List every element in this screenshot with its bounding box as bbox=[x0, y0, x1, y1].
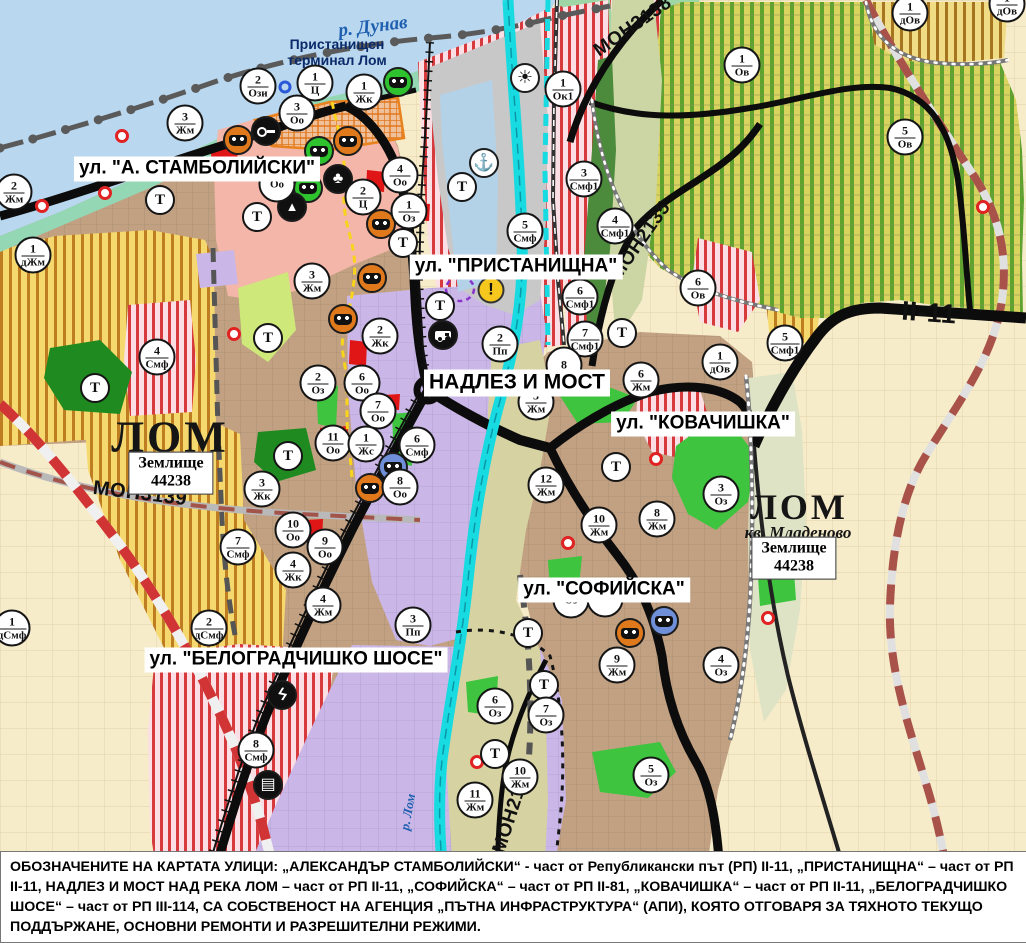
zone-code: Жм bbox=[589, 525, 610, 538]
poi-glyph bbox=[339, 136, 357, 147]
zone-code: Жм bbox=[631, 380, 652, 393]
zone-code: Оз bbox=[711, 494, 732, 507]
transport-marker: Т bbox=[80, 373, 110, 403]
zone-marker: 5 Смф bbox=[507, 213, 544, 250]
transport-label: Т bbox=[90, 380, 100, 397]
poi-icon bbox=[649, 606, 679, 636]
zone-number: 6 bbox=[414, 432, 420, 445]
legend-note: ОБОЗНАЧЕНИТЕ НА КАРТАТА УЛИЦИ: „АЛЕКСАНД… bbox=[0, 851, 1026, 943]
zone-marker: 3 Смф1 bbox=[566, 161, 603, 198]
zone-code: Оо bbox=[287, 113, 308, 126]
zone-code: Ов bbox=[688, 288, 709, 301]
zone-code: Ц bbox=[353, 197, 374, 210]
zone-number: 1 bbox=[312, 70, 318, 83]
zone-marker: 5 Оз bbox=[633, 757, 670, 794]
zone-number: 2 bbox=[497, 331, 503, 344]
transport-label: Т bbox=[283, 448, 293, 465]
zone-code: Оо bbox=[323, 443, 344, 456]
zone-marker: 2 Ози bbox=[240, 68, 277, 105]
transport-label: Т bbox=[263, 330, 273, 347]
zone-code: дСмф bbox=[195, 628, 224, 641]
zone-number: 5 bbox=[648, 762, 654, 775]
poi-glyph bbox=[229, 135, 247, 146]
street-label: ул. "БЕЛОГРАДЧИШКО ШОСЕ" bbox=[145, 648, 448, 673]
zone-code: Пп bbox=[490, 344, 511, 357]
poi-icon bbox=[357, 263, 387, 293]
poi-glyph bbox=[389, 77, 407, 88]
transport-marker: Т bbox=[447, 172, 477, 202]
zone-number: 1 bbox=[717, 349, 723, 362]
poi-icon bbox=[478, 277, 505, 304]
zone-marker: 3 Пп bbox=[395, 607, 432, 644]
poi-glyph bbox=[278, 686, 287, 705]
zone-code: Жм bbox=[4, 192, 25, 205]
zone-marker: 7 Смф bbox=[220, 529, 257, 566]
zone-code: Жм bbox=[526, 402, 547, 415]
zone-number: 1 bbox=[907, 0, 913, 13]
transport-marker: Т bbox=[145, 185, 175, 215]
zone-number: 2 bbox=[255, 73, 261, 86]
zone-code: Оо bbox=[315, 547, 336, 560]
street-label: ул. "А. СТАМБОЛИЙСКИ" bbox=[74, 157, 320, 182]
zone-number: 1 bbox=[9, 615, 15, 628]
zone-marker: 8 Оо bbox=[382, 469, 419, 506]
zone-code: Смф1 bbox=[566, 297, 595, 310]
zone-code: Жк bbox=[370, 336, 391, 349]
zone-marker: 1 Жк bbox=[346, 74, 383, 111]
transport-marker: Т bbox=[513, 618, 543, 648]
zone-number: 1 bbox=[361, 79, 367, 92]
zone-number: 6 bbox=[577, 284, 583, 297]
point-marker-icon bbox=[976, 200, 990, 214]
zone-marker: 6 Смф bbox=[399, 427, 436, 464]
zone-code: дОв bbox=[900, 13, 921, 26]
poi-glyph bbox=[334, 314, 352, 325]
street-label: НАДЛЕЗ И МОСТ bbox=[424, 370, 610, 397]
zone-number: 3 bbox=[309, 268, 315, 281]
poi-icon bbox=[333, 126, 363, 156]
zone-number: 10 bbox=[287, 517, 299, 530]
poi-icon bbox=[510, 63, 540, 93]
zone-number: 6 bbox=[492, 693, 498, 706]
zone-code: Жк bbox=[283, 570, 304, 583]
zone-code: Жм bbox=[607, 665, 628, 678]
town-label: ЛОМ bbox=[750, 486, 848, 528]
poi-glyph bbox=[361, 483, 379, 494]
zone-number: 8 bbox=[253, 737, 259, 750]
zone-marker: 3 Жм bbox=[167, 105, 204, 142]
transport-label: Т bbox=[252, 209, 262, 226]
zone-marker: 4 Оз bbox=[703, 647, 740, 684]
zone-number: 4 bbox=[612, 213, 618, 226]
poi-icon bbox=[251, 116, 281, 146]
zone-code: Оо bbox=[390, 487, 411, 500]
zone-code: Жм bbox=[647, 519, 668, 532]
zone-code: Смф bbox=[244, 750, 267, 763]
zone-marker: 2 Пп bbox=[482, 326, 519, 363]
poi-glyph bbox=[286, 198, 299, 216]
poi-icon bbox=[469, 148, 499, 178]
point-marker-icon bbox=[227, 327, 241, 341]
transport-marker: Т bbox=[253, 323, 283, 353]
zone-number: 1 bbox=[406, 198, 412, 211]
zone-marker: 1 Жс bbox=[348, 426, 385, 463]
transport-marker: Т bbox=[273, 441, 303, 471]
transport-label: Т bbox=[457, 179, 467, 196]
zone-marker: 10 Жм bbox=[502, 759, 539, 796]
zone-number: 3 bbox=[294, 100, 300, 113]
zone-code: Оз bbox=[485, 706, 506, 719]
zone-marker: 8 Смф bbox=[238, 732, 275, 769]
zone-code: Жм bbox=[536, 485, 557, 498]
zone-marker: 4 Смф1 bbox=[597, 208, 634, 245]
poi-glyph bbox=[435, 331, 451, 340]
zone-marker: 4 Оо bbox=[382, 157, 419, 194]
zone-marker: 11 Оо bbox=[315, 425, 352, 462]
zone-marker: 3 Жм bbox=[294, 263, 331, 300]
street-label: ул. "СОФИЙСКА" bbox=[518, 578, 690, 603]
zone-code: Оз bbox=[711, 665, 732, 678]
transport-label: Т bbox=[523, 625, 533, 642]
zone-code: Смф1 bbox=[601, 226, 630, 239]
zone-marker: 6 Ов bbox=[680, 270, 717, 307]
zone-number: 4 bbox=[290, 557, 296, 570]
zone-number: 3 bbox=[410, 612, 416, 625]
zone-marker: 5 Смф1 bbox=[767, 325, 804, 362]
poi-glyph bbox=[333, 170, 344, 188]
zone-number: 5 bbox=[522, 218, 528, 231]
zone-code: дЖм bbox=[21, 255, 45, 268]
zone-marker: 9 Оо bbox=[307, 529, 344, 566]
zone-number: 10 bbox=[514, 764, 526, 777]
zone-number: 11 bbox=[327, 430, 338, 443]
zone-number: 4 bbox=[320, 592, 326, 605]
zone-marker: 1 Оз bbox=[391, 193, 428, 230]
land-plot-box: Землище 44238 bbox=[128, 452, 213, 495]
zone-number: 5 bbox=[782, 330, 788, 343]
zone-marker: 9 Жм bbox=[599, 647, 636, 684]
point-marker-icon bbox=[115, 129, 129, 143]
zone-marker: 6 Оз bbox=[477, 688, 514, 725]
zone-marker: 4 Жм bbox=[305, 587, 342, 624]
zone-code: Ози bbox=[248, 86, 269, 99]
zone-marker: 12 Жм bbox=[528, 467, 565, 504]
zone-number: 5 bbox=[902, 124, 908, 137]
zone-number: 8 bbox=[397, 474, 403, 487]
zone-code: дОв bbox=[997, 4, 1018, 17]
zone-code: дСмф bbox=[0, 628, 26, 641]
zone-number: 12 bbox=[540, 472, 552, 485]
zone-code: Жк bbox=[354, 92, 375, 105]
transport-label: Т bbox=[155, 192, 165, 209]
zone-number: 2 bbox=[11, 179, 17, 192]
zone-number: 9 bbox=[614, 652, 620, 665]
zone-marker: 1 дЖм bbox=[15, 237, 52, 274]
street-label: ул. "КОВАЧИШКА" bbox=[611, 412, 795, 437]
zone-code: Смф bbox=[226, 547, 249, 560]
land-plot-box: Землище 44238 bbox=[751, 537, 836, 580]
zone-marker: 1 Ок1 bbox=[545, 71, 582, 108]
transport-label: Т bbox=[490, 746, 500, 763]
poi-icon bbox=[428, 320, 458, 350]
zone-marker: 3 Оз bbox=[703, 476, 740, 513]
zone-code: Смф bbox=[405, 445, 428, 458]
zone-number: 3 bbox=[182, 110, 188, 123]
transport-label: Т bbox=[398, 235, 408, 252]
zone-code: Оз bbox=[536, 715, 557, 728]
zone-code: Оо bbox=[390, 175, 411, 188]
poi-icon bbox=[253, 770, 283, 800]
poi-icon bbox=[355, 473, 385, 503]
zone-code: Смф bbox=[145, 357, 168, 370]
zone-marker: 2 Оз bbox=[300, 365, 337, 402]
zone-marker: 5 Ов bbox=[887, 119, 924, 156]
poi-glyph bbox=[655, 616, 673, 627]
zone-marker: 4 Смф bbox=[139, 339, 176, 376]
zone-marker: 1 дОв bbox=[702, 344, 739, 381]
zone-marker: 7 Оз bbox=[528, 697, 565, 734]
zone-marker: 6 Смф1 bbox=[562, 279, 599, 316]
poi-icon bbox=[383, 67, 413, 97]
zone-marker: 6 Жм bbox=[623, 362, 660, 399]
zone-number: 10 bbox=[593, 512, 605, 525]
zone-code: Жм bbox=[175, 123, 196, 136]
point-marker-icon bbox=[35, 199, 49, 213]
zone-code: Оо bbox=[368, 411, 389, 424]
zone-code: Жм bbox=[510, 777, 531, 790]
zone-number: 4 bbox=[154, 344, 160, 357]
zone-code: Жм bbox=[465, 800, 486, 813]
zone-marker: 2 Жк bbox=[362, 318, 399, 355]
street-label: ул. "ПРИСТАНИЩНА" bbox=[410, 255, 623, 280]
zone-marker: 2 дСмф bbox=[191, 610, 228, 647]
zone-marker: 4 Жк bbox=[275, 552, 312, 589]
zoning-map[interactable]: 2 Жм 3 Жм 2 Ози 1 Ц 3 Оо 1 Жк 1 дЖм 4 Оо… bbox=[0, 0, 1026, 943]
zone-marker: 2 Ц bbox=[345, 179, 382, 216]
poi-icon bbox=[328, 304, 358, 334]
transport-marker: Т bbox=[425, 291, 455, 321]
transport-marker: Т bbox=[601, 452, 631, 482]
zone-code: Жм bbox=[313, 605, 334, 618]
poi-glyph bbox=[473, 154, 494, 173]
transport-label: Т bbox=[611, 459, 621, 476]
poi-icon bbox=[615, 618, 645, 648]
poi-icon bbox=[223, 125, 253, 155]
poi-glyph bbox=[299, 183, 317, 194]
zone-code: Ов bbox=[895, 137, 916, 150]
zone-number: 3 bbox=[259, 476, 265, 489]
zone-number: 7 bbox=[543, 702, 549, 715]
zone-number: 1 bbox=[363, 431, 369, 444]
zone-code: Ов bbox=[732, 65, 753, 78]
zone-marker: 11 Жм bbox=[457, 782, 494, 819]
zone-marker: 7 Оо bbox=[360, 393, 397, 430]
zone-number: 2 bbox=[360, 184, 366, 197]
zone-number: 2 bbox=[315, 370, 321, 383]
poi-glyph bbox=[363, 273, 381, 284]
poi-glyph bbox=[310, 146, 328, 157]
zone-number: 9 bbox=[322, 534, 328, 547]
zone-code: Оо bbox=[283, 530, 304, 543]
zone-number: 4 bbox=[718, 652, 724, 665]
zone-code: Ц bbox=[305, 83, 326, 96]
zone-marker: 10 Жм bbox=[581, 507, 618, 544]
point-marker-icon bbox=[561, 536, 575, 550]
transport-label: Т bbox=[617, 325, 627, 342]
zone-number: 7 bbox=[235, 534, 241, 547]
poi-icon bbox=[279, 81, 292, 94]
transport-marker: Т bbox=[242, 202, 272, 232]
point-marker-icon bbox=[649, 452, 663, 466]
poi-glyph bbox=[488, 281, 494, 300]
zone-marker: 1 Ов bbox=[724, 47, 761, 84]
zone-code: дОв bbox=[710, 362, 731, 375]
zone-number: 7 bbox=[582, 326, 588, 339]
zone-code: Смф bbox=[513, 231, 536, 244]
zone-number: 3 bbox=[581, 166, 587, 179]
zone-number: 2 bbox=[377, 323, 383, 336]
zone-number: 2 bbox=[206, 615, 212, 628]
transport-marker: Т bbox=[607, 318, 637, 348]
zone-number: 6 bbox=[359, 370, 365, 383]
zone-number: 7 bbox=[375, 398, 381, 411]
poi-glyph bbox=[257, 126, 275, 136]
zone-number: 1 bbox=[739, 52, 745, 65]
poi-glyph bbox=[621, 628, 639, 639]
point-marker-icon bbox=[98, 186, 112, 200]
zone-code: Пп bbox=[403, 625, 424, 638]
zone-number: 8 bbox=[654, 506, 660, 519]
zone-marker: 8 Жм bbox=[639, 501, 676, 538]
zone-marker: 1 дСмф bbox=[0, 610, 31, 647]
port-terminal-label: Пристанищен терминал Лом bbox=[287, 36, 387, 68]
zone-code: Смф1 bbox=[570, 179, 599, 192]
poi-glyph bbox=[372, 219, 390, 230]
zone-marker: 3 Жк bbox=[244, 471, 281, 508]
zone-number: 1 bbox=[560, 76, 566, 89]
zone-number: 6 bbox=[695, 275, 701, 288]
zone-code: Оз bbox=[641, 775, 662, 788]
zone-code: Жс bbox=[356, 444, 377, 457]
zone-code: Оз bbox=[399, 211, 420, 224]
zone-code: Оз bbox=[308, 383, 329, 396]
zone-number: 6 bbox=[638, 367, 644, 380]
zone-number: 4 bbox=[397, 162, 403, 175]
zone-code: Жм bbox=[302, 281, 323, 294]
transport-label: Т bbox=[539, 677, 549, 694]
zone-code: Смф1 bbox=[771, 343, 800, 356]
transport-marker: Т bbox=[529, 670, 559, 700]
poi-icon bbox=[267, 680, 297, 710]
zone-marker: 3 Оо bbox=[279, 95, 316, 132]
point-marker-icon bbox=[761, 611, 775, 625]
poi-glyph bbox=[260, 776, 275, 794]
zone-number: 1 bbox=[30, 242, 36, 255]
zone-code: Ок1 bbox=[553, 89, 574, 102]
road-number-label: II-11 bbox=[900, 296, 957, 331]
zone-code: Жк bbox=[252, 489, 273, 502]
zone-number: 3 bbox=[718, 481, 724, 494]
poi-glyph bbox=[517, 68, 533, 88]
transport-label: Т bbox=[435, 298, 445, 315]
zone-number: 11 bbox=[469, 787, 480, 800]
